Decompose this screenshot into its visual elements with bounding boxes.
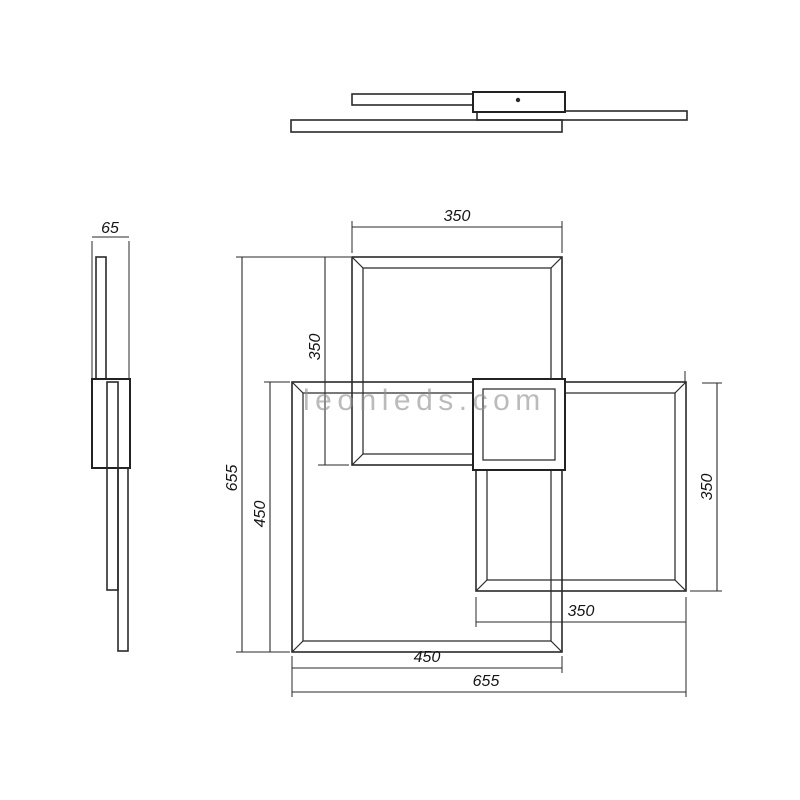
canopy-box	[473, 379, 565, 470]
dimension-overall-height-655: 655	[224, 257, 351, 652]
dim-label-right-frame-width: 350	[568, 603, 595, 620]
canopy-outer	[473, 379, 565, 470]
dim-label-right-frame-height: 350	[699, 474, 716, 501]
dimension-top-frame-height-350: 350	[307, 257, 349, 465]
dimension-overall-width-655: 655	[292, 673, 686, 692]
technical-drawing-page: 65	[0, 0, 800, 800]
front-screw-dot	[516, 98, 520, 102]
dimension-left-frame-width-450: 450	[292, 649, 562, 697]
dimension-left-frame-height-450: 450	[252, 382, 290, 652]
front-top-frame-bar	[352, 94, 474, 105]
side-canopy-box	[92, 379, 130, 468]
front-elevation-view	[291, 92, 687, 132]
plan-view: 350 350 655 450	[224, 208, 722, 697]
dim-label-left-frame-width: 450	[414, 649, 441, 666]
side-top-frame-bar	[96, 257, 106, 379]
dimension-right-frame-width-350: 350	[476, 597, 686, 697]
dim-label-left-frame-height: 450	[252, 501, 269, 528]
dim-label-top-frame-height: 350	[307, 334, 324, 361]
side-left-frame-bar	[118, 468, 128, 651]
dim-label-top-frame-width: 350	[444, 208, 471, 225]
side-elevation-view: 65	[92, 220, 130, 651]
dim-label-depth: 65	[101, 220, 119, 237]
dim-label-overall-width: 655	[473, 673, 500, 690]
front-left-frame-bar	[291, 120, 562, 132]
dim-label-overall-height: 655	[224, 465, 241, 492]
front-canopy-box	[473, 92, 565, 112]
dimension-top-frame-width-350: 350	[352, 208, 562, 253]
dimension-right-frame-height-350: 350	[685, 371, 722, 591]
dimension-depth-65: 65	[92, 220, 129, 378]
lamp-dimension-drawing: 65	[0, 0, 800, 800]
